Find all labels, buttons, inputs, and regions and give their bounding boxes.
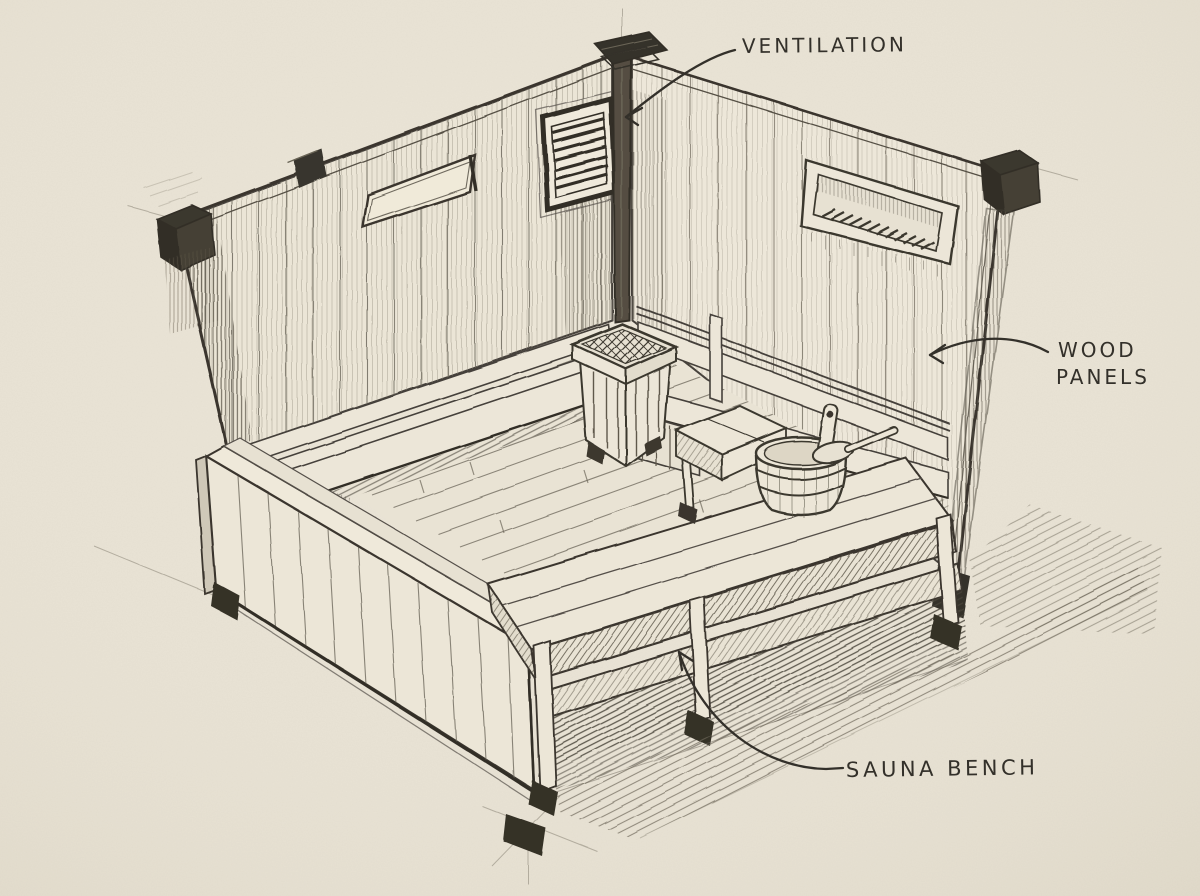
ventilation-label: VENTILATION	[742, 32, 907, 58]
wood-panels-label-line1: WOOD	[1058, 338, 1137, 362]
right-backrest-support	[710, 314, 722, 402]
left-post-shading	[164, 247, 220, 334]
sauna-bench-label: SAUNA BENCH	[846, 755, 1039, 782]
wood-panels-label-line2: PANELS	[1056, 365, 1150, 389]
sauna-sketch-page: VENTILATION WOOD PANELS SAUNA BENCH	[0, 0, 1200, 896]
right-wall-shade-corner	[632, 90, 666, 332]
right-corner-post-cap	[981, 150, 1040, 214]
corner-post-highlight	[621, 66, 622, 318]
sauna-sketch-canvas: VENTILATION WOOD PANELS SAUNA BENCH	[0, 0, 1200, 896]
